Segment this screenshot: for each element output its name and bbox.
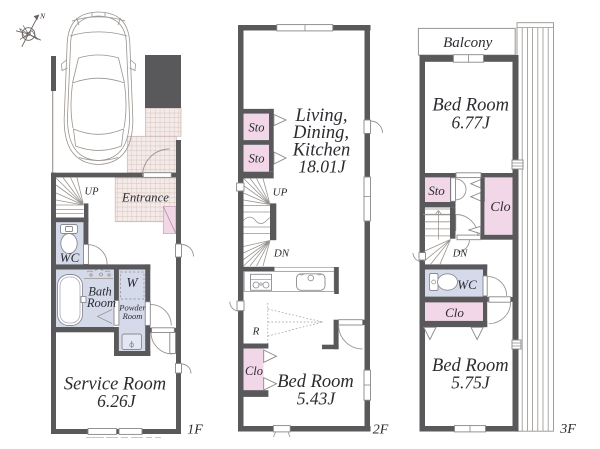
svg-text:N: N	[39, 12, 46, 21]
svg-text:18.01J: 18.01J	[298, 157, 346, 177]
svg-text:5.75J: 5.75J	[451, 373, 491, 393]
svg-text:WC: WC	[60, 250, 80, 265]
svg-text:WC: WC	[457, 277, 477, 292]
svg-text:W: W	[126, 275, 139, 290]
svg-text:Sto: Sto	[249, 152, 265, 166]
svg-text:1F: 1F	[187, 423, 203, 438]
svg-text:UP: UP	[273, 187, 288, 199]
svg-text:Sto: Sto	[428, 183, 445, 198]
svg-text:R: R	[252, 326, 260, 338]
svg-text:UP: UP	[85, 187, 100, 198]
svg-text:Clo: Clo	[445, 305, 464, 320]
svg-text:DN: DN	[273, 248, 290, 260]
svg-text:Room: Room	[86, 296, 116, 310]
svg-text:Clo: Clo	[245, 364, 263, 378]
svg-text:DN: DN	[452, 248, 469, 259]
svg-text:6.26J: 6.26J	[97, 391, 137, 411]
svg-text:Room: Room	[122, 311, 143, 321]
svg-text:Balcony: Balcony	[443, 35, 492, 51]
svg-text:6.77J: 6.77J	[451, 113, 491, 133]
svg-text:Entrance: Entrance	[121, 191, 169, 205]
svg-text:2F: 2F	[373, 423, 389, 438]
svg-text:3F: 3F	[559, 422, 576, 437]
svg-text:Clo: Clo	[490, 200, 510, 215]
svg-text:5.43J: 5.43J	[297, 389, 337, 409]
svg-text:Sto: Sto	[249, 121, 265, 135]
